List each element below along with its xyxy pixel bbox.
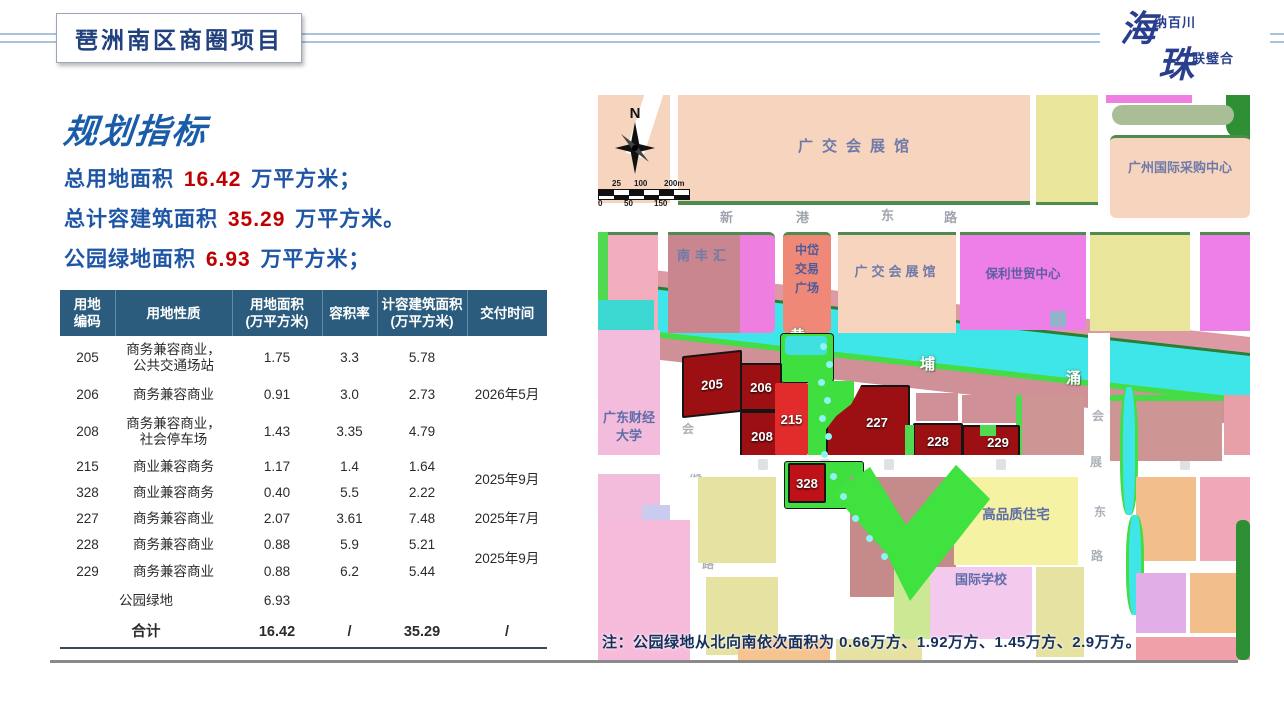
zone-pink-right-mid — [1224, 395, 1250, 455]
section-heading: 规划指标 — [61, 104, 210, 153]
plan-indicator-table: 用地 编码 用地性质 用地面积 (万平方米) 容积率 计容建筑面积 (万平方米)… — [60, 290, 547, 649]
zone-sage-strip — [1112, 105, 1234, 125]
zone-yellow-mid — [1090, 232, 1190, 331]
label-zhongdai-line2: 交易 — [783, 260, 831, 277]
delivery-merged-2026-05: 2026年5月 — [467, 336, 547, 454]
label-intl-school: 国际学校 — [930, 569, 1032, 588]
road-label-faint — [996, 459, 1006, 470]
zone-violet-right — [1136, 573, 1186, 633]
zone-procurement-center — [1110, 135, 1250, 218]
stream-dot — [819, 415, 826, 422]
zone-teal-left — [598, 300, 654, 330]
label-canton-fair-south: 广交会展馆 — [838, 261, 956, 280]
compass-star-icon — [613, 122, 657, 180]
zone-orange-right-1 — [1136, 477, 1196, 561]
road-xingang-char-4: 路 — [944, 207, 957, 226]
col-header-far: 容积率 — [322, 290, 377, 336]
col-header-area: 用地面积 (万平方米) — [232, 290, 322, 336]
plot-205: 205 — [682, 350, 742, 418]
logo-tag-nabaichuan: 纳百川 — [1154, 12, 1196, 31]
kpi-total-gfa: 总计容建筑面积 35.29 万平方米。 — [64, 200, 405, 240]
zone-mauve-above-229 — [962, 395, 1016, 423]
kpi-park-green: 公园绿地面积 6.93 万平方米； — [64, 240, 405, 280]
stream-dot — [852, 515, 859, 522]
haizhu-logo: 海 纳百川 珠 联璧合 — [1100, 0, 1270, 86]
zone-magenta-top-sliver — [1106, 95, 1192, 103]
road-xingang-char-1: 新 — [720, 207, 733, 226]
bottom-rule — [50, 660, 1238, 663]
road-huizhan-east-char-4: 路 — [1091, 547, 1103, 564]
zone-mauve-right-of-229 — [1022, 395, 1084, 455]
slide-title: 琶洲南区商圈项目 — [75, 21, 283, 55]
presentation-slide: 琶洲南区商圈项目 海 纳百川 珠 联璧合 规划指标 总用地面积 16.42 万平… — [0, 0, 1284, 702]
table-row: 205 商务兼容商业， 公共交通场站 1.75 3.3 5.78 2026年5月 — [60, 336, 547, 380]
logo-char-hai: 海 — [1120, 0, 1156, 52]
kpi-lines: 总用地面积 16.42 万平方米； 总计容建筑面积 35.29 万平方米。 公园… — [64, 160, 405, 280]
zone-mauve-above-228 — [916, 393, 958, 421]
stream-dot — [881, 553, 888, 560]
zone-canton-fair-south — [838, 232, 956, 333]
label-procurement-center: 广州国际采购中心 — [1112, 157, 1248, 176]
zone-yellow-top — [1036, 95, 1098, 205]
table-row: 227 商务兼容商业 2.07 3.61 7.48 2025年7月 — [60, 506, 547, 532]
road-xingang-char-3: 东 — [881, 205, 894, 224]
road-huizhan-east — [1088, 333, 1110, 660]
stream-dot — [821, 451, 828, 458]
logo-tag-lianbihe: 联璧合 — [1192, 48, 1234, 67]
label-nanfenghui: 南丰汇 — [670, 245, 738, 264]
zone-green-between-227-228 — [905, 425, 914, 455]
scale-bar-segments-2 — [598, 195, 690, 200]
road-label-faint — [884, 459, 894, 470]
table-row-total: 合计 16.42 / 35.29 / — [60, 616, 547, 648]
kpi-total-gfa-value: 35.29 — [225, 208, 289, 231]
stream-dot — [824, 397, 831, 404]
compass-n-label: N — [612, 105, 658, 122]
kpi-park-green-value: 6.93 — [203, 248, 254, 271]
table-row: 228 商务兼容商业 0.88 5.9 5.21 2025年9月 — [60, 532, 547, 558]
col-header-code: 用地 编码 — [60, 290, 115, 336]
plot-215: 215 — [775, 383, 808, 455]
plot-328: 328 — [788, 463, 826, 503]
zone-nanfenghui-magenta — [740, 232, 775, 333]
road-xingang-char-2: 港 — [796, 207, 809, 226]
label-university-line2: 大学 — [598, 425, 660, 444]
stream-dot — [830, 473, 837, 480]
canal-char-chong: 涌 — [1066, 367, 1081, 388]
stream-dot — [818, 379, 825, 386]
road-label-faint — [758, 459, 768, 470]
planning-map: 广交会展馆 广州国际采购中心 新 港 东 路 南丰汇 中岱 交易 广场 广交会展… — [598, 95, 1250, 660]
road-huizhan-east-char-1: 会 — [1092, 407, 1104, 424]
col-header-nature: 用地性质 — [115, 290, 232, 336]
plot-228: 228 — [913, 423, 963, 459]
table-row: 215 商业兼容商务 1.17 1.4 1.64 2025年9月 — [60, 454, 547, 480]
stream-dot — [840, 493, 847, 500]
delivery-merged-2025-09a: 2025年9月 — [467, 454, 547, 506]
compass-rose: N — [612, 105, 658, 183]
label-poly-world-trade: 保利世贸中心 — [960, 263, 1086, 282]
col-header-gfa: 计容建筑面积 (万平方米) — [377, 290, 467, 336]
label-canton-fair-north: 广交会展馆 — [718, 135, 998, 156]
label-university-line1: 广东财经 — [598, 407, 660, 426]
table-header-row: 用地 编码 用地性质 用地面积 (万平方米) 容积率 计容建筑面积 (万平方米)… — [60, 290, 547, 336]
slide-title-box: 琶洲南区商圈项目 — [56, 13, 302, 63]
zone-magenta-right — [1200, 232, 1250, 331]
zone-khaki-1 — [698, 477, 776, 563]
road-huizhan-east-char-2: 展 — [1090, 453, 1102, 470]
kpi-total-land-value: 16.42 — [181, 168, 245, 191]
stream-dot — [825, 433, 832, 440]
road-huizhan-east-char-3: 东 — [1094, 503, 1106, 520]
zone-blue-square-small — [1050, 311, 1066, 327]
plot-229-green-notch — [980, 425, 996, 436]
col-header-delivery: 交付时间 — [467, 290, 547, 336]
table-row-park-green: 公园绿地 6.93 — [60, 586, 547, 616]
stream-dot — [826, 361, 833, 368]
stream-dot — [820, 343, 827, 350]
label-zhongdai-line3: 广场 — [783, 279, 831, 296]
delivery-merged-2025-09b: 2025年9月 — [467, 532, 547, 586]
map-note: 注：公园绿地从北向南依次面积为 0.66万方、1.92万方、1.45万方、2.9… — [602, 631, 1248, 652]
scale-bar: 25 100 200m 0 50 150 — [598, 179, 694, 207]
canal-char-pu: 埔 — [920, 353, 935, 374]
road-huizhan-west-char-1: 会 — [682, 420, 694, 437]
kpi-total-land: 总用地面积 16.42 万平方米； — [64, 160, 405, 200]
delivery-2025-07: 2025年7月 — [467, 506, 547, 532]
stream-dot — [866, 535, 873, 542]
logo-char-zhu: 珠 — [1158, 36, 1194, 88]
label-zhongdai-line1: 中岱 — [783, 241, 831, 258]
